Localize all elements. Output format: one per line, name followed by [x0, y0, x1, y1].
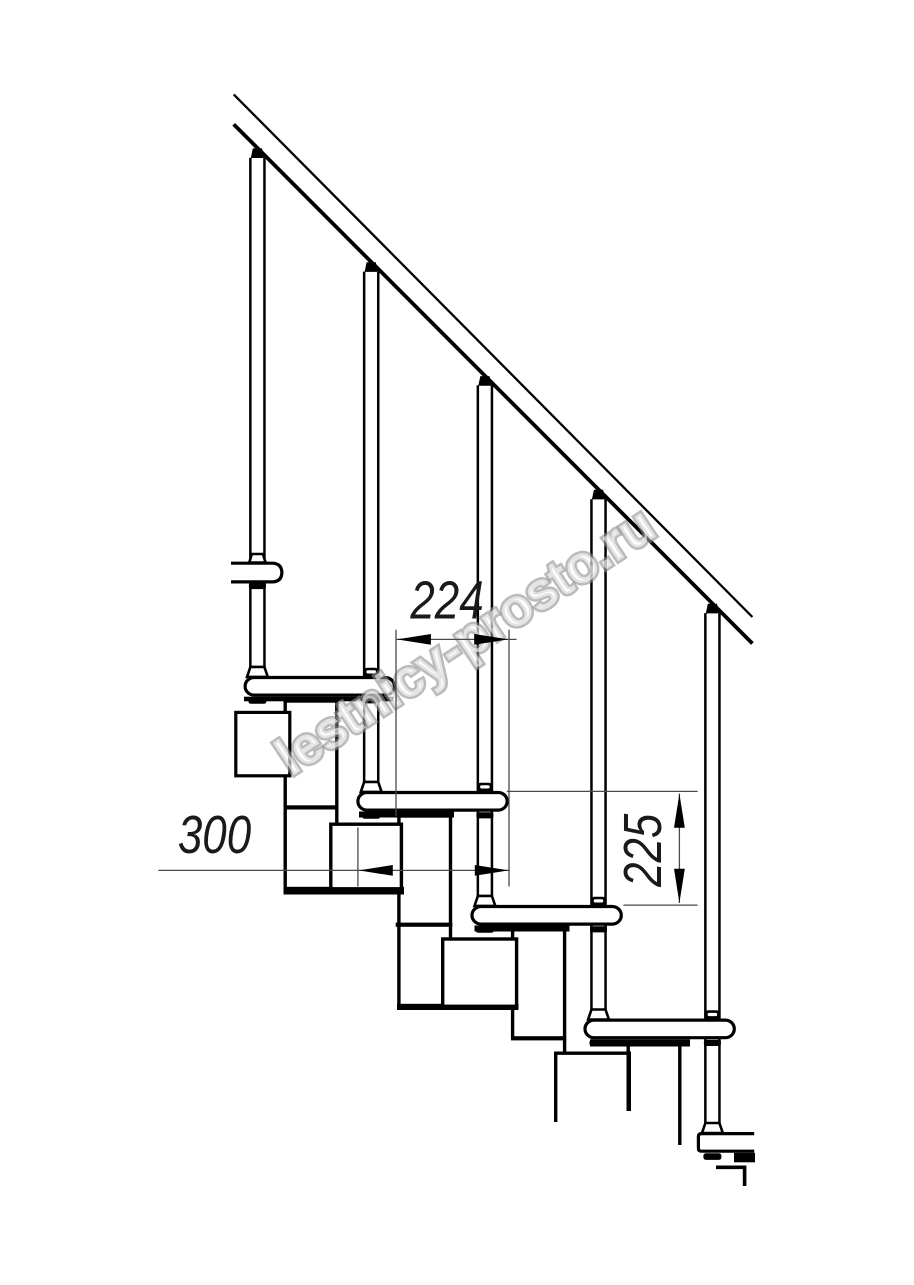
svg-text:224: 224 [410, 572, 484, 631]
svg-text:300: 300 [178, 806, 251, 865]
svg-text:225: 225 [614, 813, 673, 888]
